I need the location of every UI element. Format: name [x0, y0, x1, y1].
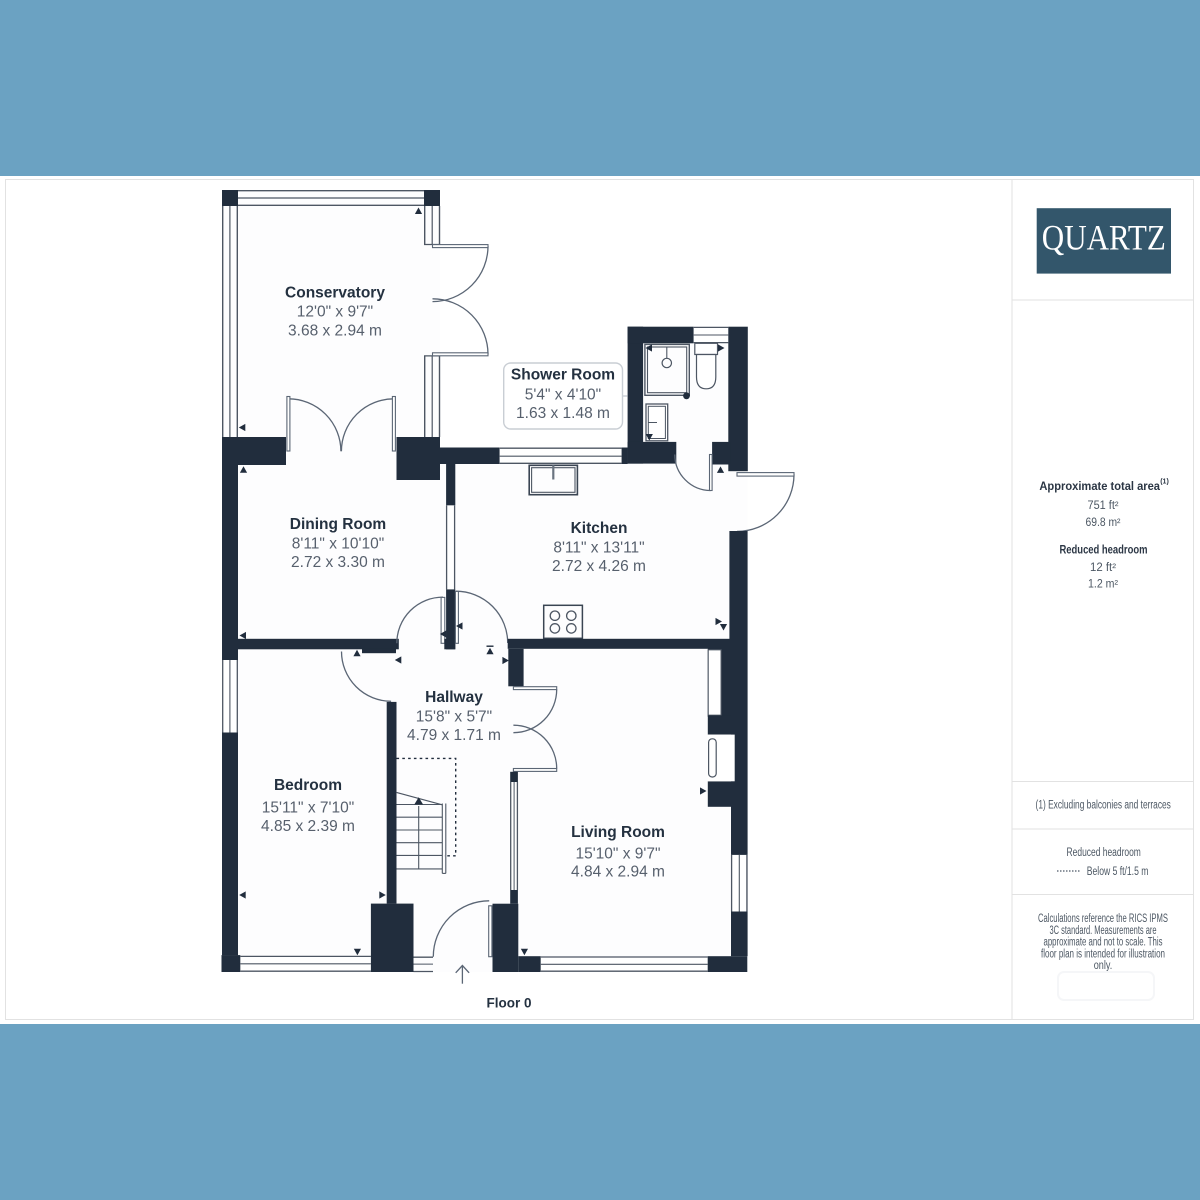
svg-text:Conservatory: Conservatory	[285, 285, 385, 302]
svg-text:QUARTZ: QUARTZ	[1042, 218, 1166, 258]
svg-text:floor plan is intended for ill: floor plan is intended for illustration	[1041, 948, 1165, 960]
svg-text:3.68 x 2.94 m: 3.68 x 2.94 m	[288, 323, 382, 340]
svg-text:approximate and not to scale.: approximate and not to scale. This	[1044, 937, 1163, 949]
svg-text:15'11" x 7'10": 15'11" x 7'10"	[262, 800, 354, 817]
svg-text:1.2 m²: 1.2 m²	[1088, 579, 1118, 591]
svg-text:8'11" x 10'10": 8'11" x 10'10"	[292, 536, 384, 553]
svg-text:only.: only.	[1094, 960, 1113, 972]
svg-text:Reduced headroom: Reduced headroom	[1067, 847, 1141, 859]
svg-text:15'8" x 5'7": 15'8" x 5'7"	[416, 709, 492, 726]
svg-text:12 ft²: 12 ft²	[1090, 562, 1116, 574]
svg-text:15'10" x 9'7": 15'10" x 9'7"	[575, 846, 660, 863]
svg-text:Below 5 ft/1.5 m: Below 5 ft/1.5 m	[1087, 866, 1149, 878]
svg-text:751 ft²: 751 ft²	[1088, 500, 1119, 512]
svg-text:2.72 x 4.26 m: 2.72 x 4.26 m	[552, 558, 646, 575]
svg-text:(1) Excluding balconies and te: (1) Excluding balconies and terraces	[1036, 800, 1171, 812]
svg-text:Kitchen: Kitchen	[571, 520, 628, 537]
svg-text:Living Room: Living Room	[571, 824, 665, 841]
svg-text:Shower Room: Shower Room	[511, 367, 615, 384]
svg-text:Bedroom: Bedroom	[274, 777, 342, 794]
svg-text:Calculations reference the RIC: Calculations reference the RICS IPMS	[1038, 913, 1168, 925]
svg-text:69.8 m²: 69.8 m²	[1086, 517, 1121, 529]
svg-text:5'4" x 4'10": 5'4" x 4'10"	[525, 387, 601, 404]
svg-text:8'11" x 13'11": 8'11" x 13'11"	[553, 540, 644, 557]
svg-text:4.84 x 2.94 m: 4.84 x 2.94 m	[571, 864, 665, 881]
svg-text:Reduced headroom: Reduced headroom	[1060, 543, 1148, 556]
svg-text:1.63 x 1.48 m: 1.63 x 1.48 m	[516, 405, 610, 422]
svg-text:Approximate total area: Approximate total area	[1039, 480, 1160, 493]
svg-text:3C standard. Measurements are: 3C standard. Measurements are	[1050, 925, 1157, 937]
svg-text:Floor 0: Floor 0	[486, 996, 531, 1011]
svg-text:4.85 x 2.39 m: 4.85 x 2.39 m	[261, 818, 355, 835]
svg-text:Hallway: Hallway	[425, 689, 483, 706]
svg-text:4.79 x 1.71 m: 4.79 x 1.71 m	[407, 727, 501, 744]
svg-text:Dining Room: Dining Room	[290, 516, 386, 533]
svg-text:2.72 x 3.30 m: 2.72 x 3.30 m	[291, 554, 385, 571]
svg-text:12'0" x 9'7": 12'0" x 9'7"	[297, 304, 373, 321]
svg-text:(1): (1)	[1160, 479, 1169, 486]
